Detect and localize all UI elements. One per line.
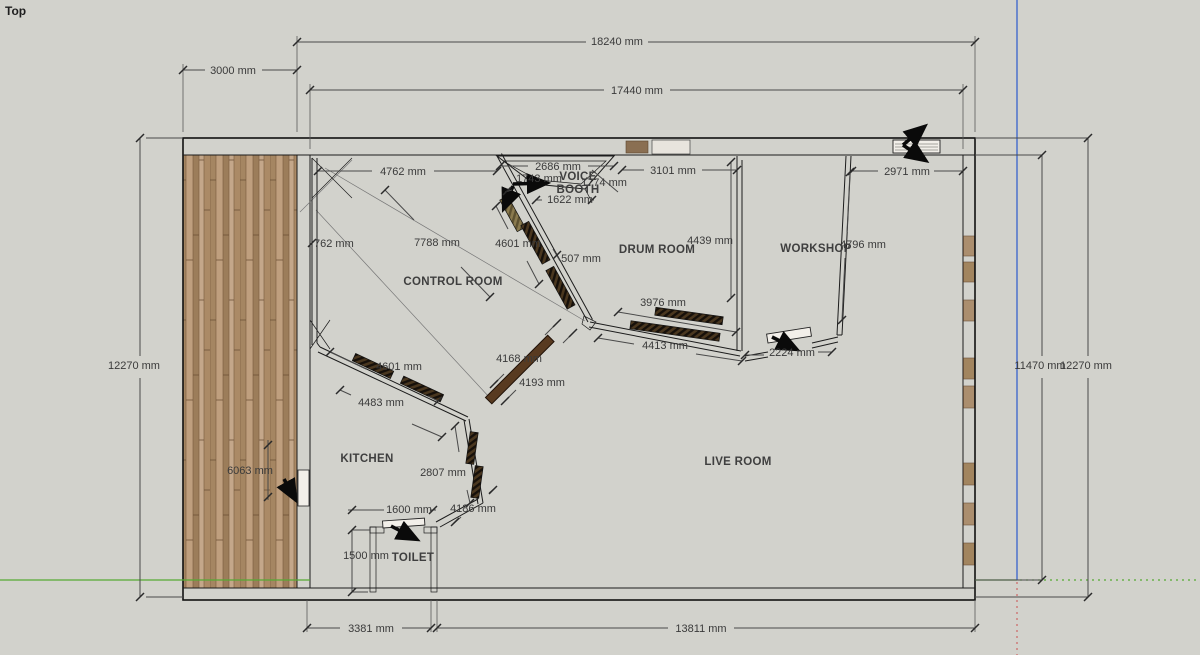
toilet-door[interactable] [383,518,425,528]
dim-label-cr-left: 762 mm [314,238,354,250]
building-shell[interactable] [183,138,975,600]
dim-label-toilet-height: 1500 mm [343,550,389,562]
control-room-left-wall [312,158,320,347]
sketchup-viewport[interactable]: Top [0,0,1200,655]
dim-label-booth-inner: 1743 mm [516,173,562,185]
dim-label-bottom-right: 13811 mm [675,623,726,635]
room-label-workshop: WORKSHOP [780,243,851,255]
dim-label-right-inner: 11470 mm [1014,360,1065,372]
floorplan-canvas[interactable]: 18240 mm 3000 mm 17440 mm 4762 mm 2686 m… [0,0,1200,655]
dim-label-bar-top: 4168 mm [496,353,542,365]
kitchen-deck-door[interactable] [298,470,309,506]
dim-label-cr-diag: 7788 mm [414,237,460,249]
live-room-door[interactable] [767,327,812,343]
dim-label-right-height: 12270 mm [1060,360,1112,372]
dim-label-bar-bottom: 4193 mm [519,377,565,389]
dim-label-bottom-left: 3381 mm [348,623,394,635]
dim-label-kw-top: 4601 mm [376,361,422,373]
room-label-live-room: LIVE ROOM [704,456,771,468]
room-label-voice: VOICE [559,171,596,183]
dim-label-left-height: 12270 mm [108,360,160,372]
right-wall-blocks [964,236,975,565]
toilet-door-arrow [391,526,416,539]
dim-label-drum-bot-in: 3976 mm [640,297,686,309]
dim-label-cr-wall: 4601 mm [495,238,541,250]
building-outline [183,138,975,600]
top-wall-blocks [626,140,690,154]
wood-deck[interactable] [183,155,297,588]
dim-label-drum-top: 3101 mm [650,165,696,177]
dim-label-ws-door: 2971 mm [884,166,930,178]
room-label-toilet: TOILET [392,552,434,564]
dim-label-507: 507 mm [561,253,601,265]
kitchen-wall [318,347,468,421]
top-wall[interactable] [183,138,975,155]
corner-braces [310,158,352,349]
dim-label-vestibule2: 4186 mm [450,503,496,515]
room-label-control-room: CONTROL ROOM [403,276,502,288]
wall-edges [183,155,975,588]
dim-label-cr-top: 4762 mm [380,166,426,178]
view-name-label: Top [5,4,26,18]
dim-label-drum-bot-out: 4413 mm [642,340,688,352]
dim-label-top-inner: 17440 mm [611,85,663,97]
dim-label-top-total: 18240 mm [591,36,643,48]
room-label-drum-room: DRUM ROOM [619,244,695,256]
dim-label-toilet-door: 1600 mm [386,504,432,516]
dim-label-kw-bottom: 4483 mm [358,397,404,409]
dim-label-porch: 3000 mm [210,65,256,77]
dim-label-deck-length: 6063 mm [227,465,273,477]
drawing-axes [0,0,1200,655]
dim-label-vestibule: 2807 mm [420,467,466,479]
dim-label-live-top: 2224 mm [769,347,815,359]
brown-door-wall[interactable] [485,335,554,404]
entry-door-louvers[interactable] [893,140,940,153]
bottom-wall[interactable] [183,588,975,600]
room-label-kitchen: KITCHEN [340,453,393,465]
room-label-booth: BOOTH [556,184,599,196]
deck-wall[interactable] [297,155,310,588]
